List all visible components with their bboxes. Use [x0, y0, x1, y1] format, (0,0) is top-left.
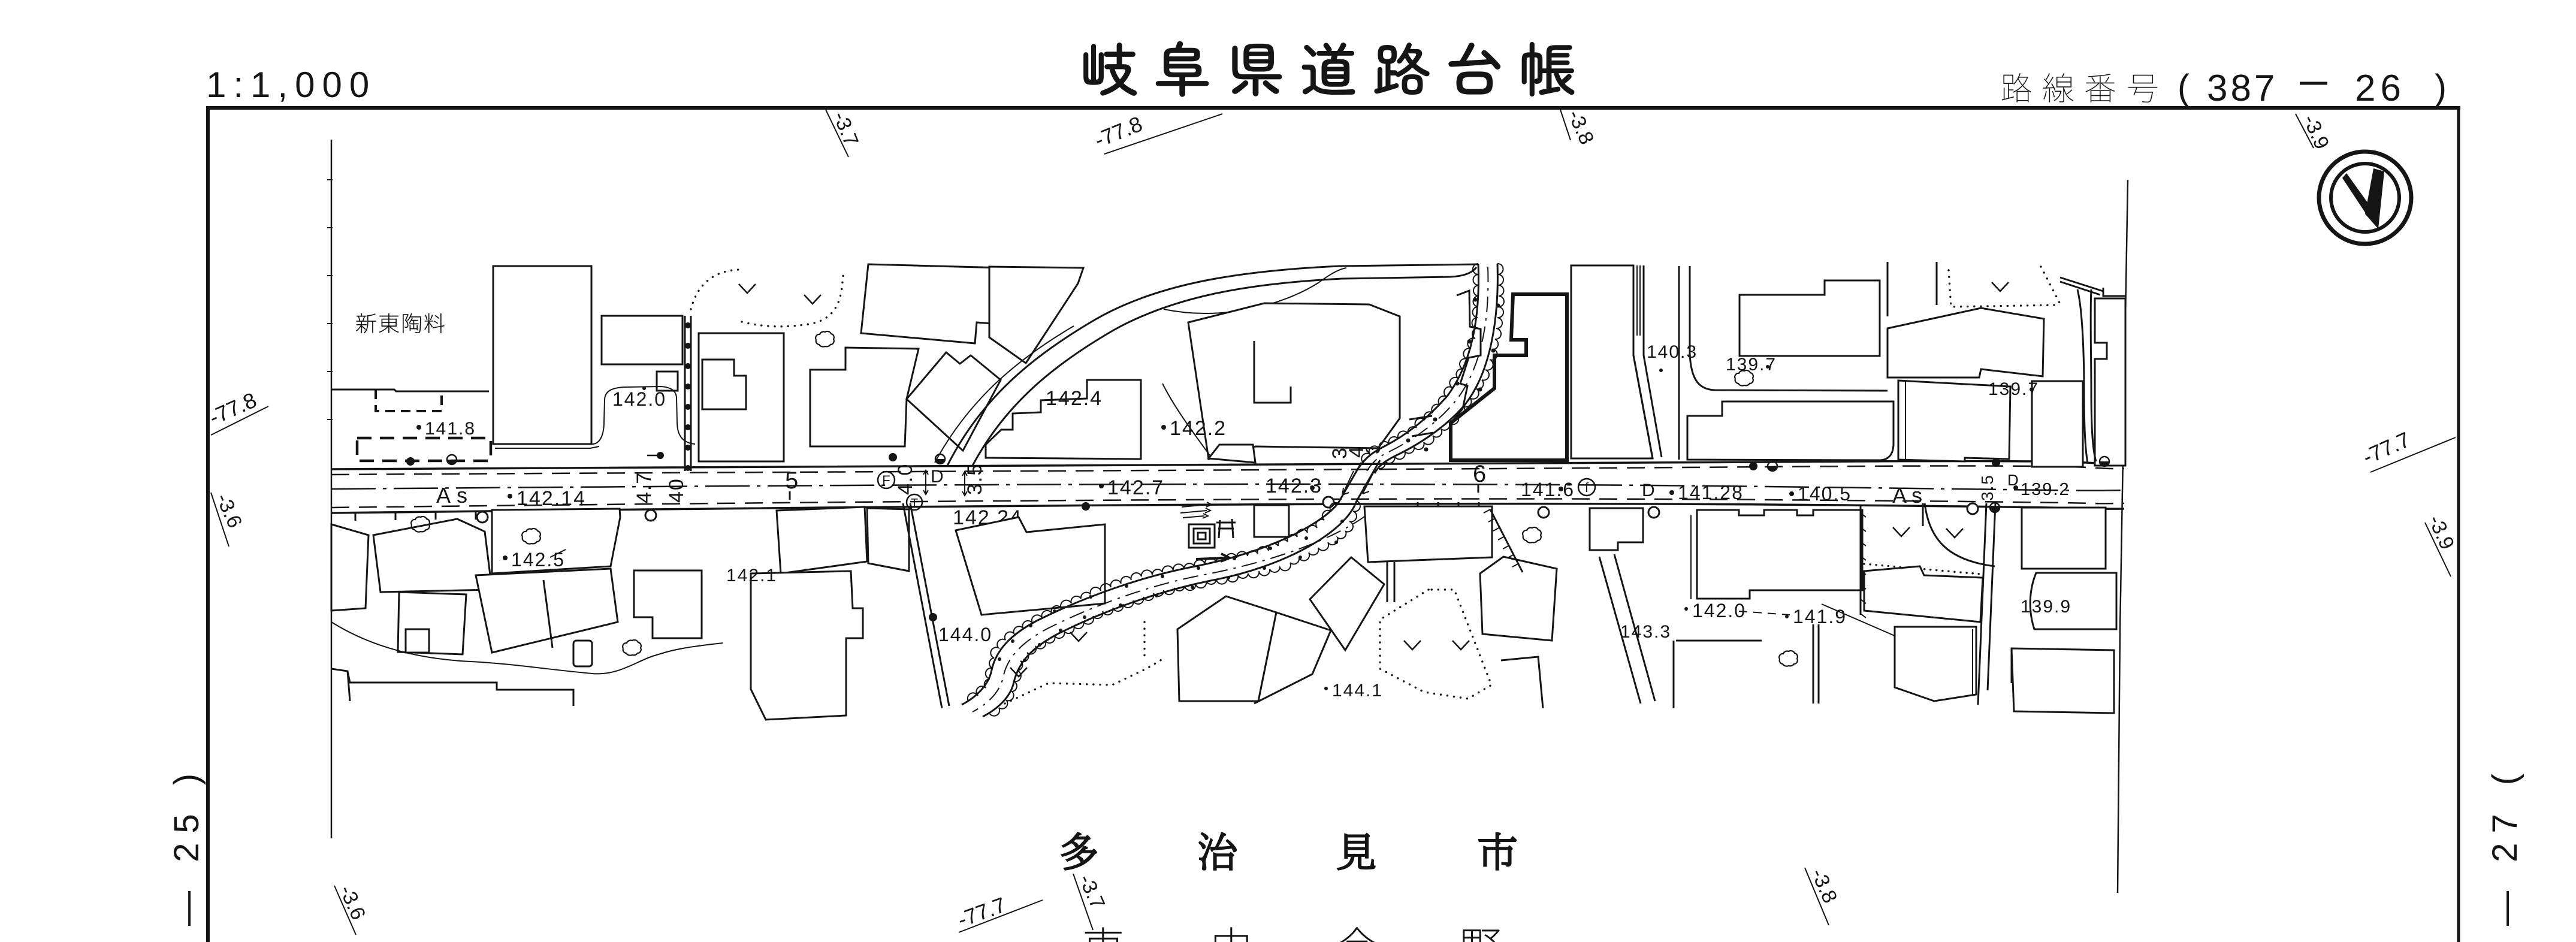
svg-text:142.5: 142.5 [511, 549, 565, 570]
svg-text:D: D [931, 467, 945, 487]
svg-text:141.9: 141.9 [1793, 606, 1847, 627]
svg-text:142.7: 142.7 [1107, 476, 1164, 499]
svg-text:(: ( [2178, 67, 2190, 107]
svg-text:— 25 ): — 25 ) [167, 764, 206, 926]
svg-text:1:1,000: 1:1,000 [206, 65, 376, 105]
svg-text:5: 5 [785, 467, 799, 494]
svg-text:F: F [882, 473, 890, 488]
svg-text:144.1: 144.1 [1332, 681, 1383, 701]
svg-text:f: f [1585, 480, 1589, 495]
svg-text:139.2: 139.2 [2021, 480, 2070, 499]
svg-text:142.2: 142.2 [1170, 417, 1227, 440]
svg-text:141.6: 141.6 [1521, 479, 1575, 500]
svg-text:): ) [2435, 67, 2447, 107]
svg-text:6: 6 [1473, 461, 1487, 487]
svg-text:141.8: 141.8 [425, 419, 476, 439]
svg-text:143.3: 143.3 [1620, 622, 1671, 642]
svg-text:D: D [2007, 471, 2020, 489]
svg-text:D: D [1642, 481, 1656, 500]
svg-text:142.14: 142.14 [517, 487, 586, 510]
svg-text:142.0: 142.0 [612, 388, 666, 410]
svg-text:142.4: 142.4 [1046, 387, 1103, 410]
svg-text:142.3: 142.3 [1266, 475, 1322, 497]
svg-text:As: As [436, 483, 473, 508]
svg-text:— 27 (: — 27 ( [2486, 764, 2524, 926]
svg-text:As: As [1892, 483, 1927, 508]
svg-text:142.0: 142.0 [1692, 600, 1746, 621]
svg-text:140.5: 140.5 [1798, 483, 1852, 505]
svg-text:141.28: 141.28 [1678, 482, 1744, 503]
svg-text:4.7: 4.7 [633, 472, 656, 503]
svg-text:142.1: 142.1 [726, 566, 777, 585]
svg-text:139.7: 139.7 [1726, 355, 1777, 375]
svg-text:26: 26 [2355, 68, 2406, 109]
svg-text:387: 387 [2207, 68, 2278, 109]
svg-text:4.0: 4.0 [894, 463, 917, 495]
svg-text:3.5: 3.5 [1978, 474, 1997, 501]
svg-text:3.5: 3.5 [964, 463, 986, 495]
svg-text:139.9: 139.9 [2021, 597, 2071, 617]
svg-text:40: 40 [665, 478, 688, 503]
svg-text:144.0: 144.0 [938, 624, 992, 645]
